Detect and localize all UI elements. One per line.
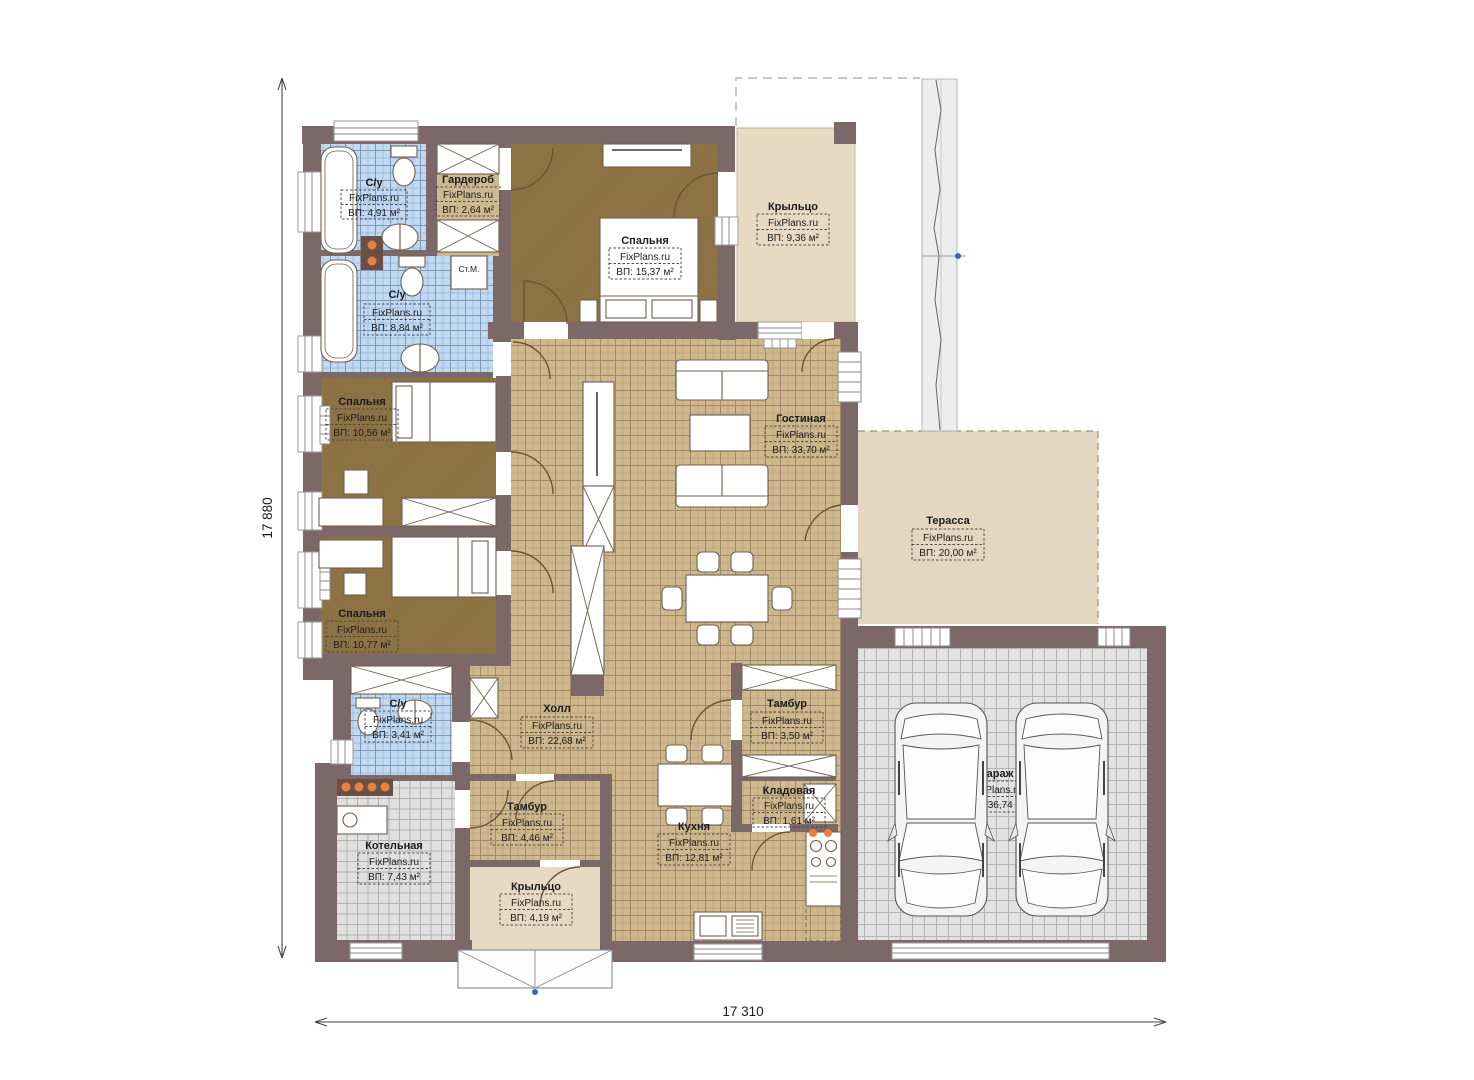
svg-text:FixPlans.ru: FixPlans.ru	[776, 430, 826, 441]
svg-text:FixPlans.ru: FixPlans.ru	[337, 413, 387, 424]
svg-text:ВП: 3,41 м²: ВП: 3,41 м²	[372, 730, 425, 741]
svg-text:ВП: 2,64 м²: ВП: 2,64 м²	[442, 205, 495, 216]
svg-text:Кладовая: Кладовая	[763, 785, 816, 797]
svg-text:FixPlans.ru: FixPlans.ru	[369, 857, 419, 868]
svg-text:ВП: 20,00 м²: ВП: 20,00 м²	[919, 548, 977, 559]
svg-text:Терасса: Терасса	[926, 515, 970, 527]
svg-text:С/у: С/у	[389, 698, 407, 710]
svg-text:С/у: С/у	[388, 289, 406, 301]
svg-text:Ст.М.: Ст.М.	[459, 264, 480, 274]
svg-text:Спальня: Спальня	[338, 608, 386, 620]
svg-text:ВП: 4,46 м²: ВП: 4,46 м²	[501, 833, 554, 844]
svg-text:ВП: 4,19 м²: ВП: 4,19 м²	[510, 913, 563, 924]
svg-text:Кухня: Кухня	[678, 821, 710, 833]
svg-text:Спальня: Спальня	[621, 235, 669, 247]
svg-text:Тамбур: Тамбур	[507, 801, 547, 813]
svg-text:Крыльцо: Крыльцо	[511, 881, 561, 893]
svg-text:ВП: 10,77 м²: ВП: 10,77 м²	[333, 640, 391, 651]
svg-text:ВП: 1,61 м²: ВП: 1,61 м²	[763, 816, 816, 827]
svg-text:FixPlans.ru: FixPlans.ru	[502, 818, 552, 829]
svg-text:ВП: 33,70 м²: ВП: 33,70 м²	[772, 445, 830, 456]
svg-text:ВП: 3,50 м²: ВП: 3,50 м²	[761, 731, 814, 742]
svg-text:Крыльцо: Крыльцо	[768, 201, 818, 213]
svg-text:FixPlans.ru: FixPlans.ru	[337, 625, 387, 636]
svg-text:ВП: 4,91 м²: ВП: 4,91 м²	[348, 208, 401, 219]
svg-text:FixPlans.ru: FixPlans.ru	[923, 533, 973, 544]
svg-text:FixPlans.ru: FixPlans.ru	[373, 715, 423, 726]
svg-text:FixPlans.ru: FixPlans.ru	[762, 716, 812, 727]
svg-text:FixPlans.ru: FixPlans.ru	[349, 193, 399, 204]
svg-text:ВП: 15,37 м²: ВП: 15,37 м²	[616, 267, 674, 278]
svg-text:Гардероб: Гардероб	[442, 174, 494, 186]
svg-text:ВП: 12,81 м²: ВП: 12,81 м²	[665, 853, 723, 864]
svg-text:FixPlans.ru: FixPlans.ru	[669, 838, 719, 849]
svg-text:FixPlans.ru: FixPlans.ru	[764, 801, 814, 812]
svg-text:FixPlans.ru: FixPlans.ru	[768, 218, 818, 229]
svg-text:FixPlans.ru: FixPlans.ru	[372, 308, 422, 319]
svg-text:Спальня: Спальня	[338, 396, 386, 408]
svg-text:FixPlans.ru: FixPlans.ru	[511, 898, 561, 909]
svg-text:FixPlans.ru: FixPlans.ru	[620, 252, 670, 263]
svg-text:17 310: 17 310	[722, 1004, 763, 1019]
svg-text:ВП: 7,43 м²: ВП: 7,43 м²	[368, 872, 421, 883]
svg-text:ВП: 22,68 м²: ВП: 22,68 м²	[528, 736, 586, 747]
svg-text:Тамбур: Тамбур	[767, 698, 807, 710]
svg-text:Холл: Холл	[543, 703, 571, 715]
svg-text:С/у: С/у	[365, 177, 383, 189]
svg-text:Котельная: Котельная	[365, 840, 423, 852]
svg-text:Гостиная: Гостиная	[776, 413, 826, 425]
svg-text:17 880: 17 880	[260, 497, 275, 538]
svg-text:ВП: 9,36 м²: ВП: 9,36 м²	[767, 233, 820, 244]
svg-text:FixPlans.ru: FixPlans.ru	[443, 190, 493, 201]
svg-text:FixPlans.ru: FixPlans.ru	[532, 721, 582, 732]
svg-text:ВП: 8,84 м²: ВП: 8,84 м²	[371, 323, 424, 334]
svg-text:ВП: 10,56 м²: ВП: 10,56 м²	[333, 428, 391, 439]
